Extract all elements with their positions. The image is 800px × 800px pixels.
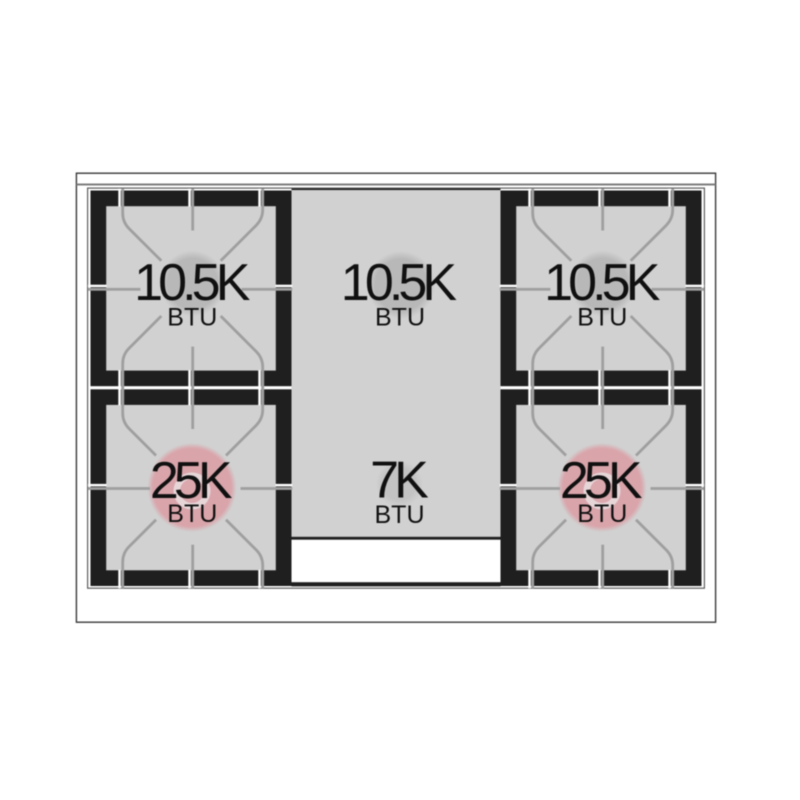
svg-text:BTU: BTU (577, 304, 627, 332)
svg-text:BTU: BTU (167, 304, 217, 332)
svg-text:BTU: BTU (375, 501, 425, 529)
svg-text:BTU: BTU (577, 500, 627, 528)
svg-text:BTU: BTU (375, 304, 425, 332)
svg-text:BTU: BTU (167, 500, 217, 528)
